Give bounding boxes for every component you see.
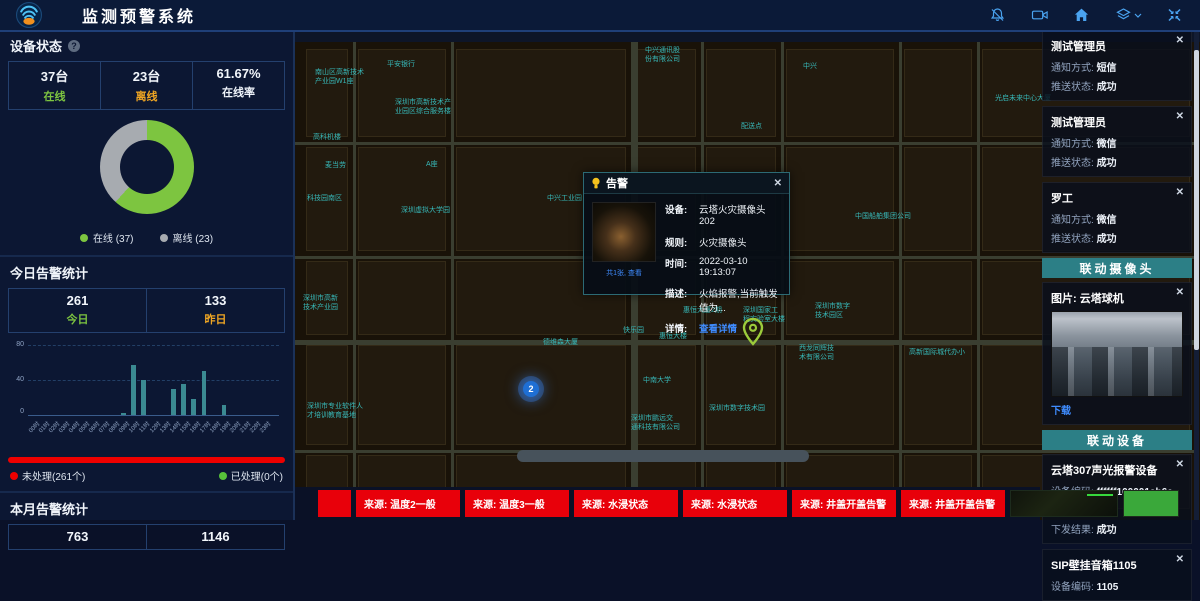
map-place-label: 深圳市专业软件人 才培训教育基地 <box>307 402 363 420</box>
legend-dot-icon <box>80 234 88 242</box>
card-field: 通知方式: 短信 <box>1051 59 1183 74</box>
map-block <box>904 49 972 137</box>
unhandled-legend: 未处理(261个) <box>10 468 85 483</box>
camera-image-label: 图片: 云塔球机 <box>1051 290 1183 306</box>
card-field-value: 微信 <box>1097 139 1117 150</box>
alert-field-label: 详情: <box>665 321 699 335</box>
bar <box>131 365 136 415</box>
map-place-label: 中兴工业园 <box>547 194 582 203</box>
map-block <box>358 261 446 335</box>
card-close-icon[interactable]: ✕ <box>1176 554 1184 565</box>
legend-item: 离线 (23) <box>160 230 214 245</box>
month-alarm-stats: 7631146 <box>8 524 285 550</box>
alert-tile[interactable]: 来源: 水浸状态 <box>683 490 787 517</box>
card-field-value: 1105 <box>1097 582 1119 593</box>
map-cluster-marker[interactable]: 2 <box>523 381 539 397</box>
video-thumbnail[interactable] <box>1010 490 1118 517</box>
card-field-value: 短信 <box>1097 63 1117 74</box>
card-close-icon[interactable]: ✕ <box>1176 111 1184 122</box>
bulb-icon <box>591 177 601 190</box>
camera-snapshot-image[interactable] <box>1051 311 1183 397</box>
map-block <box>786 147 894 251</box>
map-place-label: 深圳市高新 技术产业园 <box>303 294 338 312</box>
alert-snapshot-caption[interactable]: 共1张, 查看 <box>592 268 656 278</box>
map-place-label: 配送点 <box>741 122 762 131</box>
today-alarm-stats: 261今日133昨日 <box>8 288 285 333</box>
linked-device-header: 联动设备 <box>1042 430 1192 450</box>
alert-field-row: 规则:火灾摄像头 <box>665 235 781 249</box>
fullscreen-icon[interactable] <box>1166 7 1184 23</box>
map-place-label: 深圳市高新技术产 业园区综合服务楼 <box>395 98 451 116</box>
map-place-label: 南山区高新技术 产业园W1座 <box>315 68 364 86</box>
video-camera-icon[interactable] <box>1031 7 1049 23</box>
notification-name: 罗工 <box>1051 190 1183 206</box>
hourly-alarm-bar-chart: 80 40 0 00时01时02时03时04时05时06时07时08时09时10… <box>8 339 285 449</box>
bar <box>141 380 146 415</box>
layers-icon[interactable] <box>1115 7 1142 23</box>
legend-dot-icon <box>160 234 168 242</box>
stat-label: 昨日 <box>147 311 284 327</box>
alert-tile[interactable]: 来源: 井盖开盖告警 <box>901 490 1005 517</box>
map-place-label: 中兴 <box>803 62 817 71</box>
alert-field-row: 时间:2022-03-10 19:13:07 <box>665 256 781 278</box>
stat-cell: 37台在线 <box>9 62 100 109</box>
handled-legend: 已处理(0个) <box>219 468 283 483</box>
map-road <box>899 42 902 514</box>
device-status-title: 设备状态 ? <box>0 30 293 59</box>
map-block <box>904 261 972 335</box>
status-success: 成功 <box>1097 234 1117 245</box>
stat-label: 离线 <box>101 88 192 104</box>
linked-device-card: ✕SIP壁挂音箱1105设备编码: 1105 <box>1042 549 1192 601</box>
left-panel: 设备状态 ? 37台在线23台离线61.67%在线率 在线 (37)离线 (23… <box>0 30 295 520</box>
map-place-label: 高新国际城代办小 <box>909 348 965 357</box>
map-place-label: 科技园南区 <box>307 194 342 203</box>
stat-cell: 23台离线 <box>100 62 192 109</box>
map-road <box>451 42 454 514</box>
notification-name: 测试管理员 <box>1051 38 1183 54</box>
map-road <box>353 42 356 514</box>
alert-field-row: 描述:火焰报警,当前触发值为... <box>665 286 781 314</box>
alert-tile[interactable]: 来源: 水浸状态 <box>574 490 678 517</box>
map-main-road <box>517 450 809 462</box>
view-details-link[interactable]: 查看详情 <box>699 321 781 335</box>
legend-label: 在线 (37) <box>93 230 134 245</box>
stat-value: 261 <box>9 293 146 308</box>
stat-value: 23台 <box>101 66 192 85</box>
map-road <box>977 42 980 514</box>
alert-field-label: 描述: <box>665 286 699 314</box>
stat-value: 1146 <box>147 529 284 544</box>
device-title: 云塔307声光报警设备 <box>1051 462 1183 478</box>
month-alarm-section: 本月告警统计 7631146 <box>0 491 293 550</box>
map-place-label: 深圳市鹏远交 通科技有限公司 <box>631 414 680 432</box>
alert-field-label: 时间: <box>665 256 699 278</box>
card-close-icon[interactable]: ✕ <box>1176 35 1184 46</box>
stat-value: 37台 <box>9 66 100 85</box>
month-alarm-title: 本月告警统计 <box>0 493 293 522</box>
stat-value: 763 <box>9 529 146 544</box>
alert-popup: 告警 ✕ 共1张, 查看 设备:云塔火灾摄像头202规则:火灾摄像头时间:202… <box>583 172 790 295</box>
stat-value: 61.67% <box>193 66 284 81</box>
stat-cell: 261今日 <box>9 289 146 332</box>
card-close-icon[interactable]: ✕ <box>1176 187 1184 198</box>
card-field: 设备编码: 1105 <box>1051 578 1183 593</box>
legend-item: 在线 (37) <box>80 230 134 245</box>
alert-field-row: 详情:查看详情 <box>665 321 781 335</box>
card-field-value: 微信 <box>1097 215 1117 226</box>
alert-popup-title: 告警 <box>606 175 769 191</box>
card-field: 推送状态: 成功 <box>1051 78 1183 93</box>
alert-field-row: 设备:云塔火灾摄像头202 <box>665 202 781 227</box>
card-field: 通知方式: 微信 <box>1051 135 1183 150</box>
right-panel: ✕测试管理员通知方式: 短信推送状态: 成功✕测试管理员通知方式: 微信推送状态… <box>1040 30 1194 520</box>
stat-cell: 763 <box>9 525 146 549</box>
help-icon[interactable]: ? <box>68 40 80 52</box>
today-alarm-title: 今日告警统计 <box>0 257 293 286</box>
device-title: SIP壁挂音箱1105 <box>1051 557 1183 573</box>
scrollbar-thumb[interactable] <box>1194 50 1199 350</box>
card-close-icon[interactable]: ✕ <box>1176 287 1184 298</box>
right-scrollbar[interactable] <box>1194 30 1199 520</box>
home-icon[interactable] <box>1073 7 1091 23</box>
bar <box>222 405 227 416</box>
notification-card: ✕测试管理员通知方式: 短信推送状态: 成功 <box>1042 30 1192 101</box>
bell-off-icon[interactable] <box>989 7 1007 23</box>
card-field: 下发结果: 成功 <box>1051 521 1183 536</box>
map-place-label: 西龙同辉技 术有限公司 <box>799 344 834 362</box>
bar <box>121 413 126 415</box>
app-header: 监测预警系统 <box>0 0 1200 32</box>
linked-camera-card: ✕图片: 云塔球机下载 <box>1042 282 1192 425</box>
map-place-label: 深圳虚拟大学园 <box>401 206 450 215</box>
unhandled-progress-bar <box>8 457 285 463</box>
linked-camera-header: 联动摄像头 <box>1042 258 1192 278</box>
alert-tile[interactable]: 来源: 温度2一般 <box>356 490 460 517</box>
download-link[interactable]: 下载 <box>1051 402 1183 417</box>
map-place-label: 中国船舶集团公司 <box>855 212 911 221</box>
map-place-label: 深圳市数字 技术园区 <box>815 302 850 320</box>
today-alarm-section: 今日告警统计 261今日133昨日 80 40 0 00时01时02时03时04… <box>0 255 293 483</box>
card-field: 通知方式: 微信 <box>1051 211 1183 226</box>
map-block <box>904 147 972 251</box>
bar <box>171 389 176 415</box>
alert-field-label: 设备: <box>665 202 699 227</box>
chevron-down-icon <box>1134 13 1142 18</box>
alert-snapshot-image[interactable] <box>592 202 656 262</box>
stat-cell: 61.67%在线率 <box>192 62 284 109</box>
status-success: 成功 <box>1097 158 1117 169</box>
alert-field-value: 火灾摄像头 <box>699 235 781 249</box>
alert-field-value: 云塔火灾摄像头202 <box>699 202 781 227</box>
map-block <box>706 345 776 445</box>
device-status-stats: 37台在线23台离线61.67%在线率 <box>8 61 285 110</box>
device-status-section: 设备状态 ? 37台在线23台离线61.67%在线率 在线 (37)离线 (23… <box>0 30 293 245</box>
device-status-donut-chart <box>100 120 194 214</box>
map-place-label: 中南大学 <box>643 376 671 385</box>
page-title: 监测预警系统 <box>82 3 196 27</box>
alert-field-label: 规则: <box>665 235 699 249</box>
red-dot-icon <box>10 472 18 480</box>
legend-label: 离线 (23) <box>173 230 214 245</box>
bar <box>191 399 196 415</box>
map-block <box>904 345 972 445</box>
stat-label: 在线率 <box>193 84 284 100</box>
card-close-icon[interactable]: ✕ <box>1176 459 1184 470</box>
alert-tile[interactable]: 来源: 井盖开盖告警 <box>792 490 896 517</box>
map-block <box>306 49 348 137</box>
stat-label: 今日 <box>9 311 146 327</box>
stat-label: 在线 <box>9 88 100 104</box>
map-block <box>456 49 626 137</box>
alert-popup-close-icon[interactable]: ✕ <box>774 178 782 189</box>
map-block <box>786 261 894 335</box>
map-place-label: 中兴通讯股 份有限公司 <box>645 46 680 64</box>
card-field: 推送状态: 成功 <box>1051 154 1183 169</box>
map-place-label: 深圳市数字技术园 <box>709 404 765 413</box>
map-block <box>456 345 626 445</box>
bottom-alert-bar: 来源: 温度2一般来源: 温度3一般来源: 水浸状态来源: 水浸状态来源: 井盖… <box>295 487 1200 520</box>
video-thumbnail[interactable] <box>1123 490 1179 517</box>
alert-tile[interactable]: 来源: 温度3一般 <box>465 490 569 517</box>
bar <box>181 384 186 415</box>
alert-tile-partial[interactable] <box>318 490 351 517</box>
notification-card: ✕测试管理员通知方式: 微信推送状态: 成功 <box>1042 106 1192 177</box>
stat-value: 133 <box>147 293 284 308</box>
card-field: 推送状态: 成功 <box>1051 230 1183 245</box>
alert-field-value: 火焰报警,当前触发值为... <box>699 286 781 314</box>
map-block <box>306 345 348 445</box>
alert-snapshot: 共1张, 查看 <box>592 202 656 343</box>
notification-card: ✕罗工通知方式: 微信推送状态: 成功 <box>1042 182 1192 253</box>
status-success: 成功 <box>1097 82 1117 93</box>
map-place-label: 麦当劳 <box>325 161 346 170</box>
alert-field-value: 2022-03-10 19:13:07 <box>699 256 781 278</box>
map-block <box>358 345 446 445</box>
app-logo-icon <box>16 2 42 28</box>
map-place-label: 平安银行 <box>387 60 415 69</box>
stat-cell: 133昨日 <box>146 289 284 332</box>
map-place-label: 高科机楼 <box>313 133 341 142</box>
status-success: 成功 <box>1097 525 1117 536</box>
bar <box>202 371 207 415</box>
donut-legend: 在线 (37)离线 (23) <box>0 230 293 245</box>
green-dot-icon <box>219 472 227 480</box>
map-place-label: A座 <box>426 160 438 169</box>
map-place-label: 德维森大厦 <box>543 338 578 347</box>
notification-name: 测试管理员 <box>1051 114 1183 130</box>
stat-cell: 1146 <box>146 525 284 549</box>
